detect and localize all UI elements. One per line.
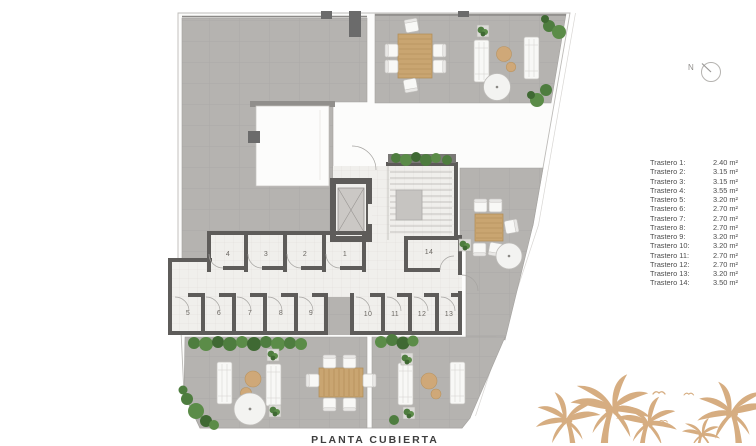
south-passage <box>328 297 350 335</box>
legend-label: Trastero 14: <box>650 278 690 287</box>
legend-area: 3.15 m² <box>713 167 738 176</box>
planter <box>401 353 413 365</box>
north-arrow: N <box>688 63 721 82</box>
legend-row: Trastero 7:2.70 m² <box>650 214 738 223</box>
sun-lounger <box>266 364 281 406</box>
planter <box>459 239 471 251</box>
legend-area: 3.20 m² <box>713 269 738 278</box>
room-number-label: 5 <box>179 310 197 317</box>
legend-row: Trastero 2:3.15 m² <box>650 167 738 176</box>
dining-table <box>319 368 363 397</box>
legend-label: Trastero 1: <box>650 158 685 167</box>
legend-area: 3.15 m² <box>713 177 738 186</box>
planter <box>269 405 281 417</box>
stair-well <box>396 190 422 220</box>
side-table <box>421 373 437 389</box>
room-number-label: 9 <box>302 310 320 317</box>
legend-area: 2.70 m² <box>713 223 738 232</box>
chair <box>473 243 486 256</box>
sun-lounger <box>524 37 539 79</box>
storage-legend: Trastero 1:2.40 m²Trastero 2:3.15 m²Tras… <box>650 158 738 288</box>
palm-watermark <box>536 374 756 443</box>
legend-row: Trastero 10:3.20 m² <box>650 241 738 250</box>
legend-label: Trastero 6: <box>650 204 685 213</box>
legend-label: Trastero 5: <box>650 195 685 204</box>
floor-plan-drawing: N <box>0 0 756 443</box>
room-number-label: 2 <box>296 251 314 258</box>
chair <box>306 374 319 387</box>
room-number-label: 12 <box>413 311 431 318</box>
legend-row: Trastero 14:3.50 m² <box>650 278 738 287</box>
legend-label: Trastero 9: <box>650 232 685 241</box>
legend-area: 2.70 m² <box>713 214 738 223</box>
legend-row: Trastero 5:3.20 m² <box>650 195 738 204</box>
legend-label: Trastero 13: <box>650 269 690 278</box>
side-table <box>506 62 516 72</box>
chair <box>489 199 502 212</box>
legend-label: Trastero 12: <box>650 260 690 269</box>
chair <box>385 44 398 57</box>
room-number-label: 14 <box>420 249 438 256</box>
legend-row: Trastero 8:2.70 m² <box>650 223 738 232</box>
legend-label: Trastero 8: <box>650 223 685 232</box>
planter <box>477 25 489 37</box>
legend-row: Trastero 12:2.70 m² <box>650 260 738 269</box>
side-table <box>497 47 512 62</box>
room-number-label: 6 <box>210 310 228 317</box>
sun-lounger <box>217 362 232 404</box>
room-number-label: 4 <box>219 251 237 258</box>
dining-table <box>398 34 432 78</box>
room-number-label: 8 <box>272 310 290 317</box>
chair <box>385 60 398 73</box>
lightwell-void <box>248 101 335 186</box>
bush <box>389 415 399 425</box>
legend-area: 2.70 m² <box>713 260 738 269</box>
terrace-southeast <box>372 337 505 428</box>
room-number-label: 13 <box>440 311 458 318</box>
legend-row: Trastero 11:2.70 m² <box>650 251 738 260</box>
chair <box>433 44 446 57</box>
room-number-label: 7 <box>241 310 259 317</box>
legend-label: Trastero 7: <box>650 214 685 223</box>
chair <box>343 398 356 411</box>
chair <box>323 355 336 368</box>
legend-area: 2.70 m² <box>713 204 738 213</box>
chair <box>323 398 336 411</box>
dining-table <box>475 214 503 241</box>
legend-row: Trastero 4:3.55 m² <box>650 186 738 195</box>
sun-lounger <box>450 362 465 404</box>
legend-row: Trastero 6:2.70 m² <box>650 204 738 213</box>
chair <box>363 374 376 387</box>
chair <box>504 219 519 234</box>
chair <box>433 60 446 73</box>
legend-area: 3.55 m² <box>713 186 738 195</box>
chair <box>474 199 487 212</box>
legend-area: 3.20 m² <box>713 195 738 204</box>
legend-row: Trastero 13:3.20 m² <box>650 269 738 278</box>
north-label: N <box>688 63 694 72</box>
legend-label: Trastero 2: <box>650 167 685 176</box>
legend-area: 3.20 m² <box>713 232 738 241</box>
room-number-label: 1 <box>336 251 354 258</box>
room-number-label: 11 <box>386 311 404 318</box>
plan-title: PLANTA CUBIERTA <box>240 434 510 446</box>
legend-area: 2.40 m² <box>713 158 738 167</box>
planter <box>267 349 279 361</box>
side-table <box>431 389 441 399</box>
legend-row: Trastero 9:3.20 m² <box>650 232 738 241</box>
planter <box>403 407 415 419</box>
sun-lounger <box>474 40 489 82</box>
chair <box>343 355 356 368</box>
wall-stub <box>248 131 260 143</box>
bird-icon <box>653 392 665 394</box>
side-table <box>245 371 261 387</box>
legend-row: Trastero 3:3.15 m² <box>650 177 738 186</box>
sun-lounger <box>398 363 413 405</box>
legend-label: Trastero 3: <box>650 177 685 186</box>
chair <box>403 78 418 93</box>
elevator-door-gap <box>368 204 372 224</box>
legend-label: Trastero 4: <box>650 186 685 195</box>
bird-icon <box>684 393 694 395</box>
room-number-label: 10 <box>359 311 377 318</box>
chair <box>404 18 419 33</box>
room-number-label: 3 <box>257 251 275 258</box>
legend-area: 2.70 m² <box>713 251 738 260</box>
legend-area: 3.20 m² <box>713 241 738 250</box>
legend-label: Trastero 11: <box>650 251 689 260</box>
floor-plan-canvas: N 1234567891011121314 Trastero 1:2.40 m²… <box>0 0 756 443</box>
legend-area: 3.50 m² <box>713 278 738 287</box>
legend-label: Trastero 10: <box>650 241 690 250</box>
legend-row: Trastero 1:2.40 m² <box>650 158 738 167</box>
